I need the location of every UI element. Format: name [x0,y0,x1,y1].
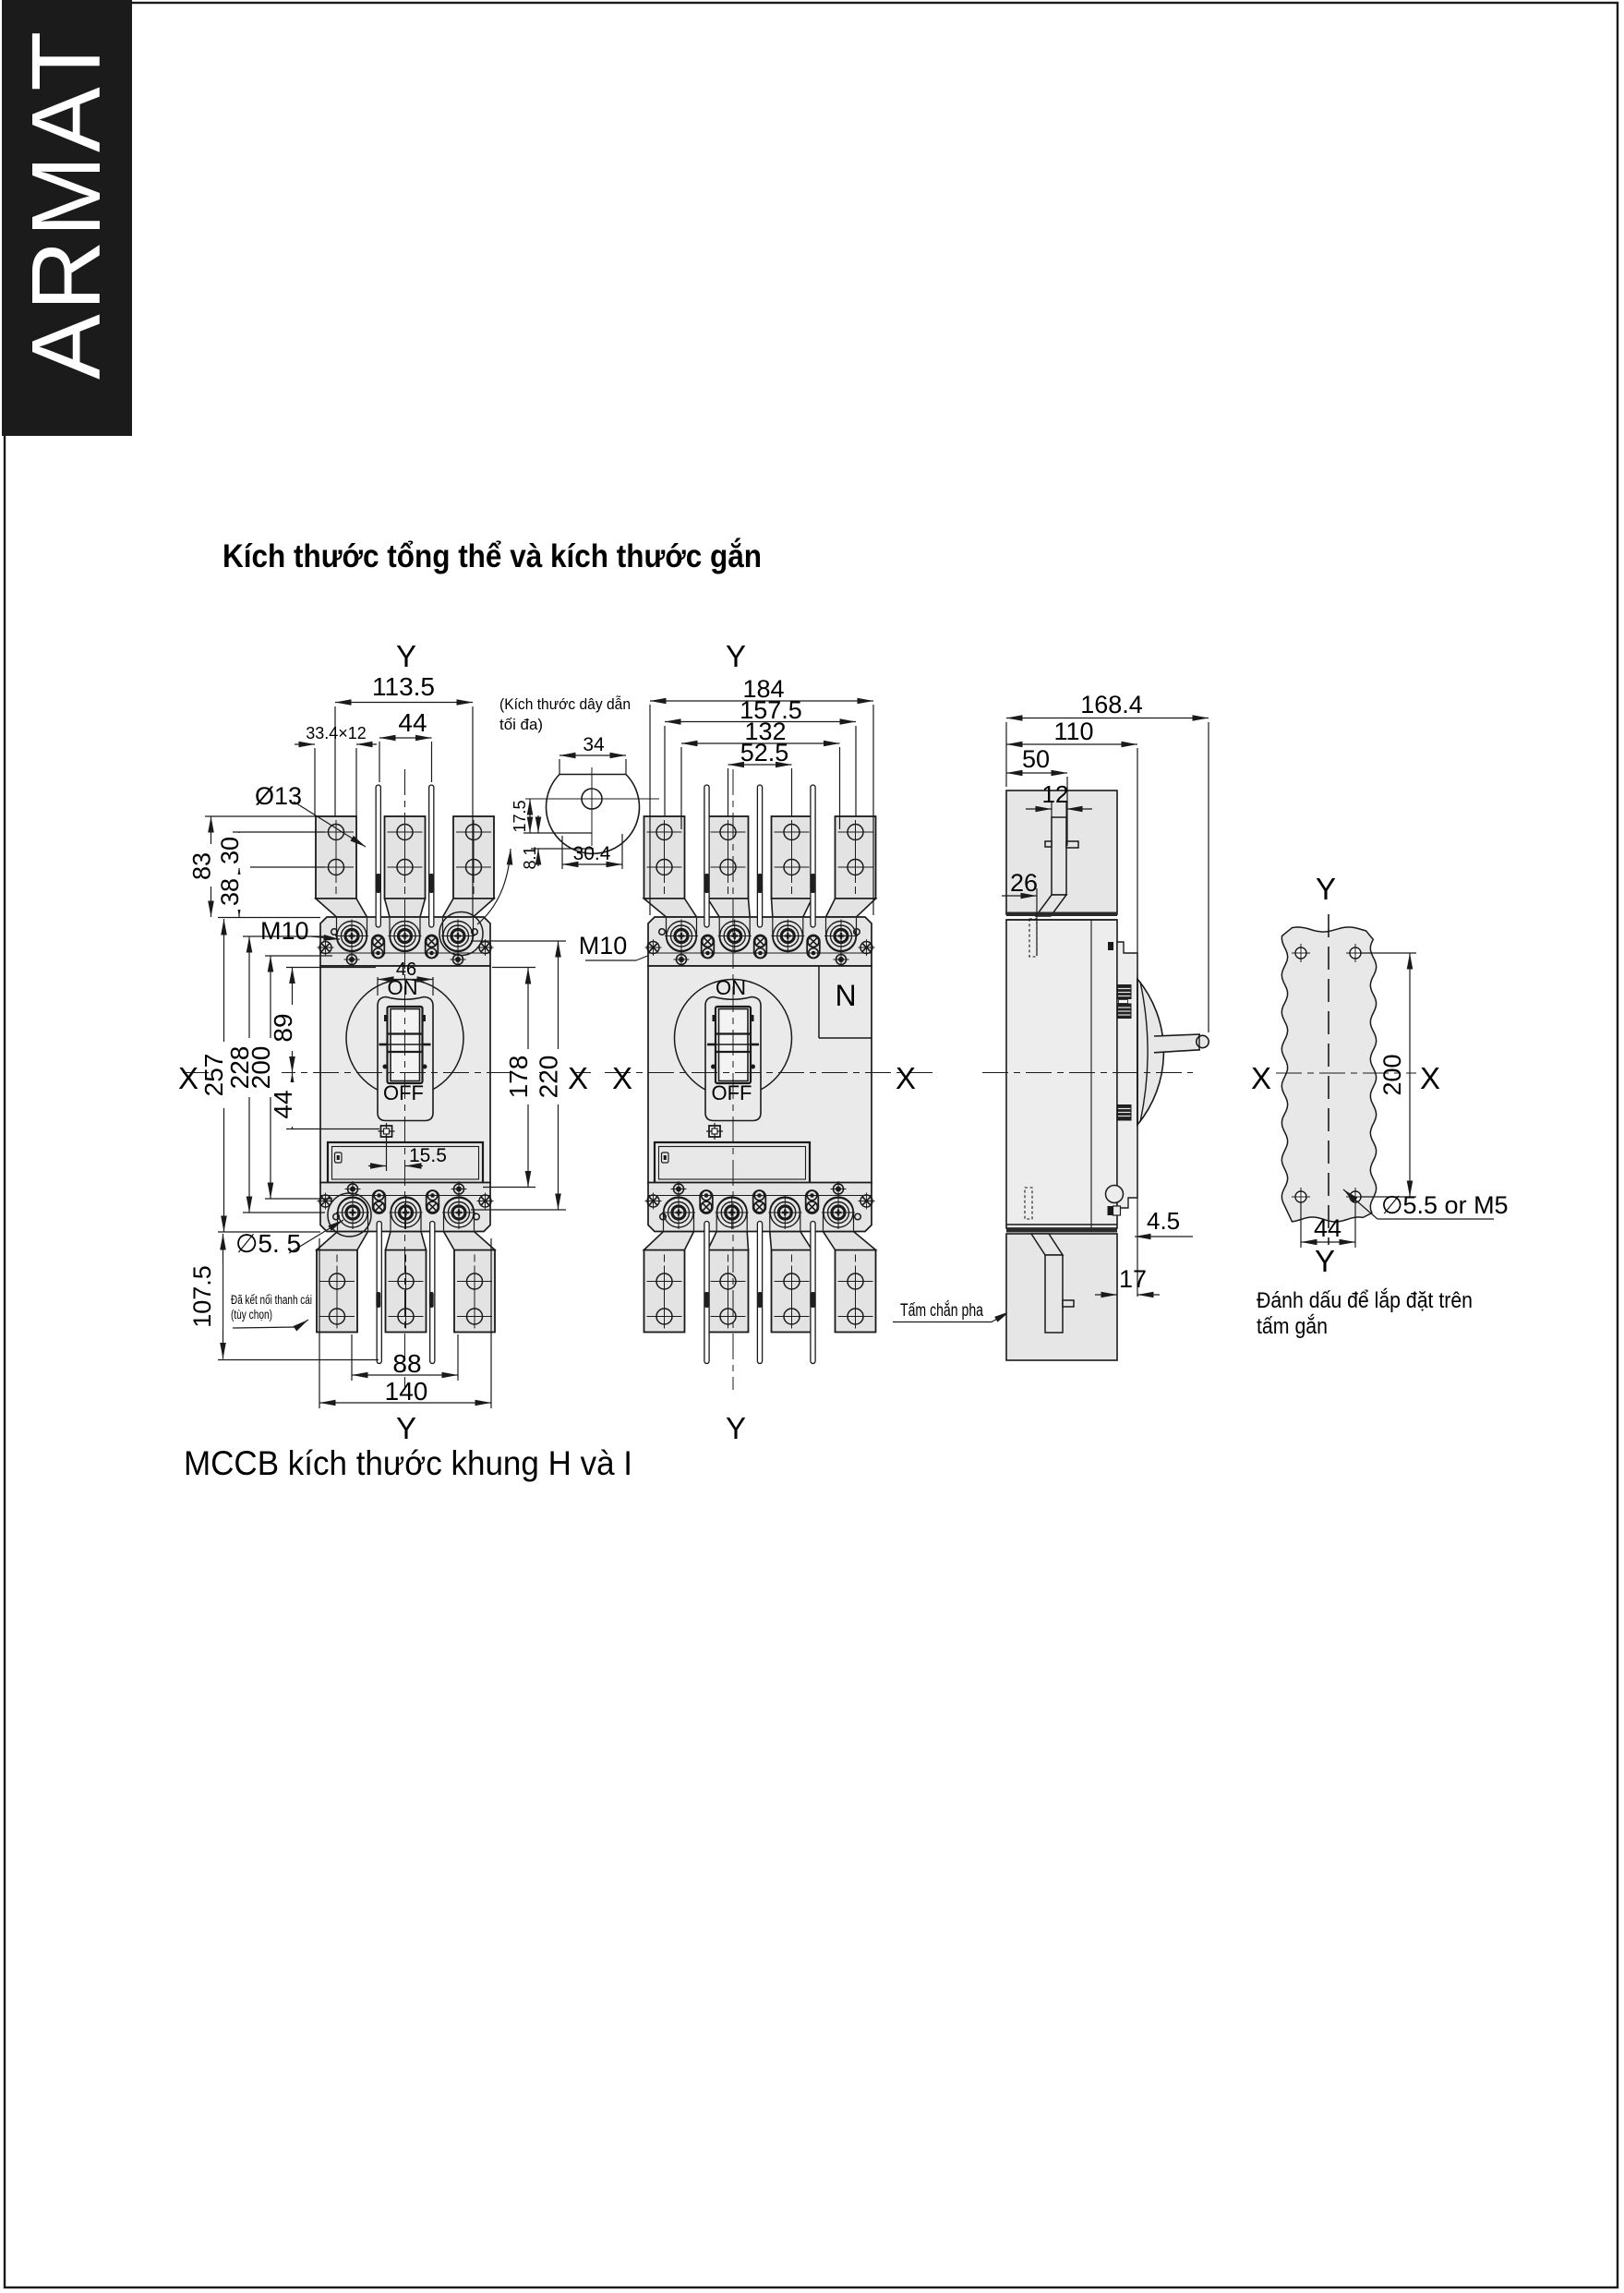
svg-text:140: 140 [385,1377,428,1406]
svg-text:Ø13: Ø13 [255,782,302,810]
svg-text:tối đa): tối đa) [499,716,543,733]
svg-text:OFF: OFF [383,1081,424,1104]
svg-text:12: 12 [1042,780,1069,808]
svg-text:∅5. 5: ∅5. 5 [235,1229,301,1258]
svg-text:N: N [835,979,856,1012]
svg-text:X: X [896,1061,916,1095]
svg-text:44: 44 [1314,1214,1341,1242]
svg-text:83: 83 [188,852,216,880]
svg-text:30.4: 30.4 [573,843,611,864]
svg-text:4.5: 4.5 [1147,1207,1180,1235]
svg-text:M10: M10 [260,917,309,945]
svg-text:X: X [178,1061,198,1095]
svg-text:Y: Y [1315,1244,1335,1278]
svg-text:Y: Y [396,639,416,673]
svg-text:50: 50 [1022,745,1050,773]
svg-text:Y: Y [396,1411,416,1445]
svg-text:113.5: 113.5 [372,672,435,701]
svg-text:Đánh dấu để lắp đặt trên: Đánh dấu để lắp đặt trên [1257,1288,1473,1313]
svg-text:(Kích thước dây dẫn: (Kích thước dây dẫn [499,695,631,713]
svg-text:Tấm chắn pha: Tấm chắn pha [900,1300,983,1321]
svg-text:Y: Y [726,1411,746,1445]
svg-text:X: X [568,1061,588,1095]
svg-text:200: 200 [1378,1054,1406,1095]
svg-text:220: 220 [535,1056,563,1099]
svg-text:26: 26 [1010,869,1038,897]
svg-text:88: 88 [392,1349,421,1378]
svg-text:X: X [1251,1061,1271,1095]
svg-text:178: 178 [504,1056,533,1099]
svg-text:M10: M10 [579,932,628,959]
svg-text:8.1: 8.1 [521,846,539,869]
svg-text:44: 44 [398,708,427,737]
svg-text:38: 38 [216,878,244,906]
svg-text:MCCB kích thước khung H và I: MCCB kích thước khung H và I [184,1444,632,1482]
svg-text:257: 257 [199,1054,228,1097]
svg-text:44: 44 [269,1090,297,1118]
svg-text:46: 46 [396,959,416,980]
svg-text:15.5: 15.5 [409,1145,447,1166]
svg-text:110: 110 [1053,718,1093,745]
svg-text:(tùy chọn): (tùy chọn) [231,1308,272,1321]
svg-text:168.4: 168.4 [1080,691,1143,718]
svg-text:52.5: 52.5 [740,739,789,766]
svg-text:Đã kết nối thanh cái: Đã kết nối thanh cái [231,1293,312,1307]
svg-text:OFF: OFF [712,1081,752,1104]
svg-text:Kích thước tổng thể và kích th: Kích thước tổng thể và kích thước gắn [223,537,762,574]
svg-text:Y: Y [1316,872,1336,906]
svg-text:ON: ON [716,976,746,999]
svg-text:tấm gắn: tấm gắn [1257,1314,1328,1339]
svg-text:X: X [1420,1061,1440,1095]
svg-text:X: X [612,1061,632,1095]
svg-text:17: 17 [1119,1265,1147,1293]
svg-text:107.5: 107.5 [188,1265,216,1328]
svg-text:30: 30 [216,837,244,864]
svg-text:34: 34 [583,734,605,755]
svg-text:89: 89 [269,1013,297,1042]
svg-text:∅5.5 or M5: ∅5.5 or M5 [1381,1191,1509,1219]
svg-text:200: 200 [247,1046,275,1090]
svg-text:17.5: 17.5 [511,800,529,832]
svg-text:Y: Y [726,639,746,673]
svg-text:ARMAT: ARMAT [12,28,121,380]
svg-text:33.4×12: 33.4×12 [306,724,367,742]
